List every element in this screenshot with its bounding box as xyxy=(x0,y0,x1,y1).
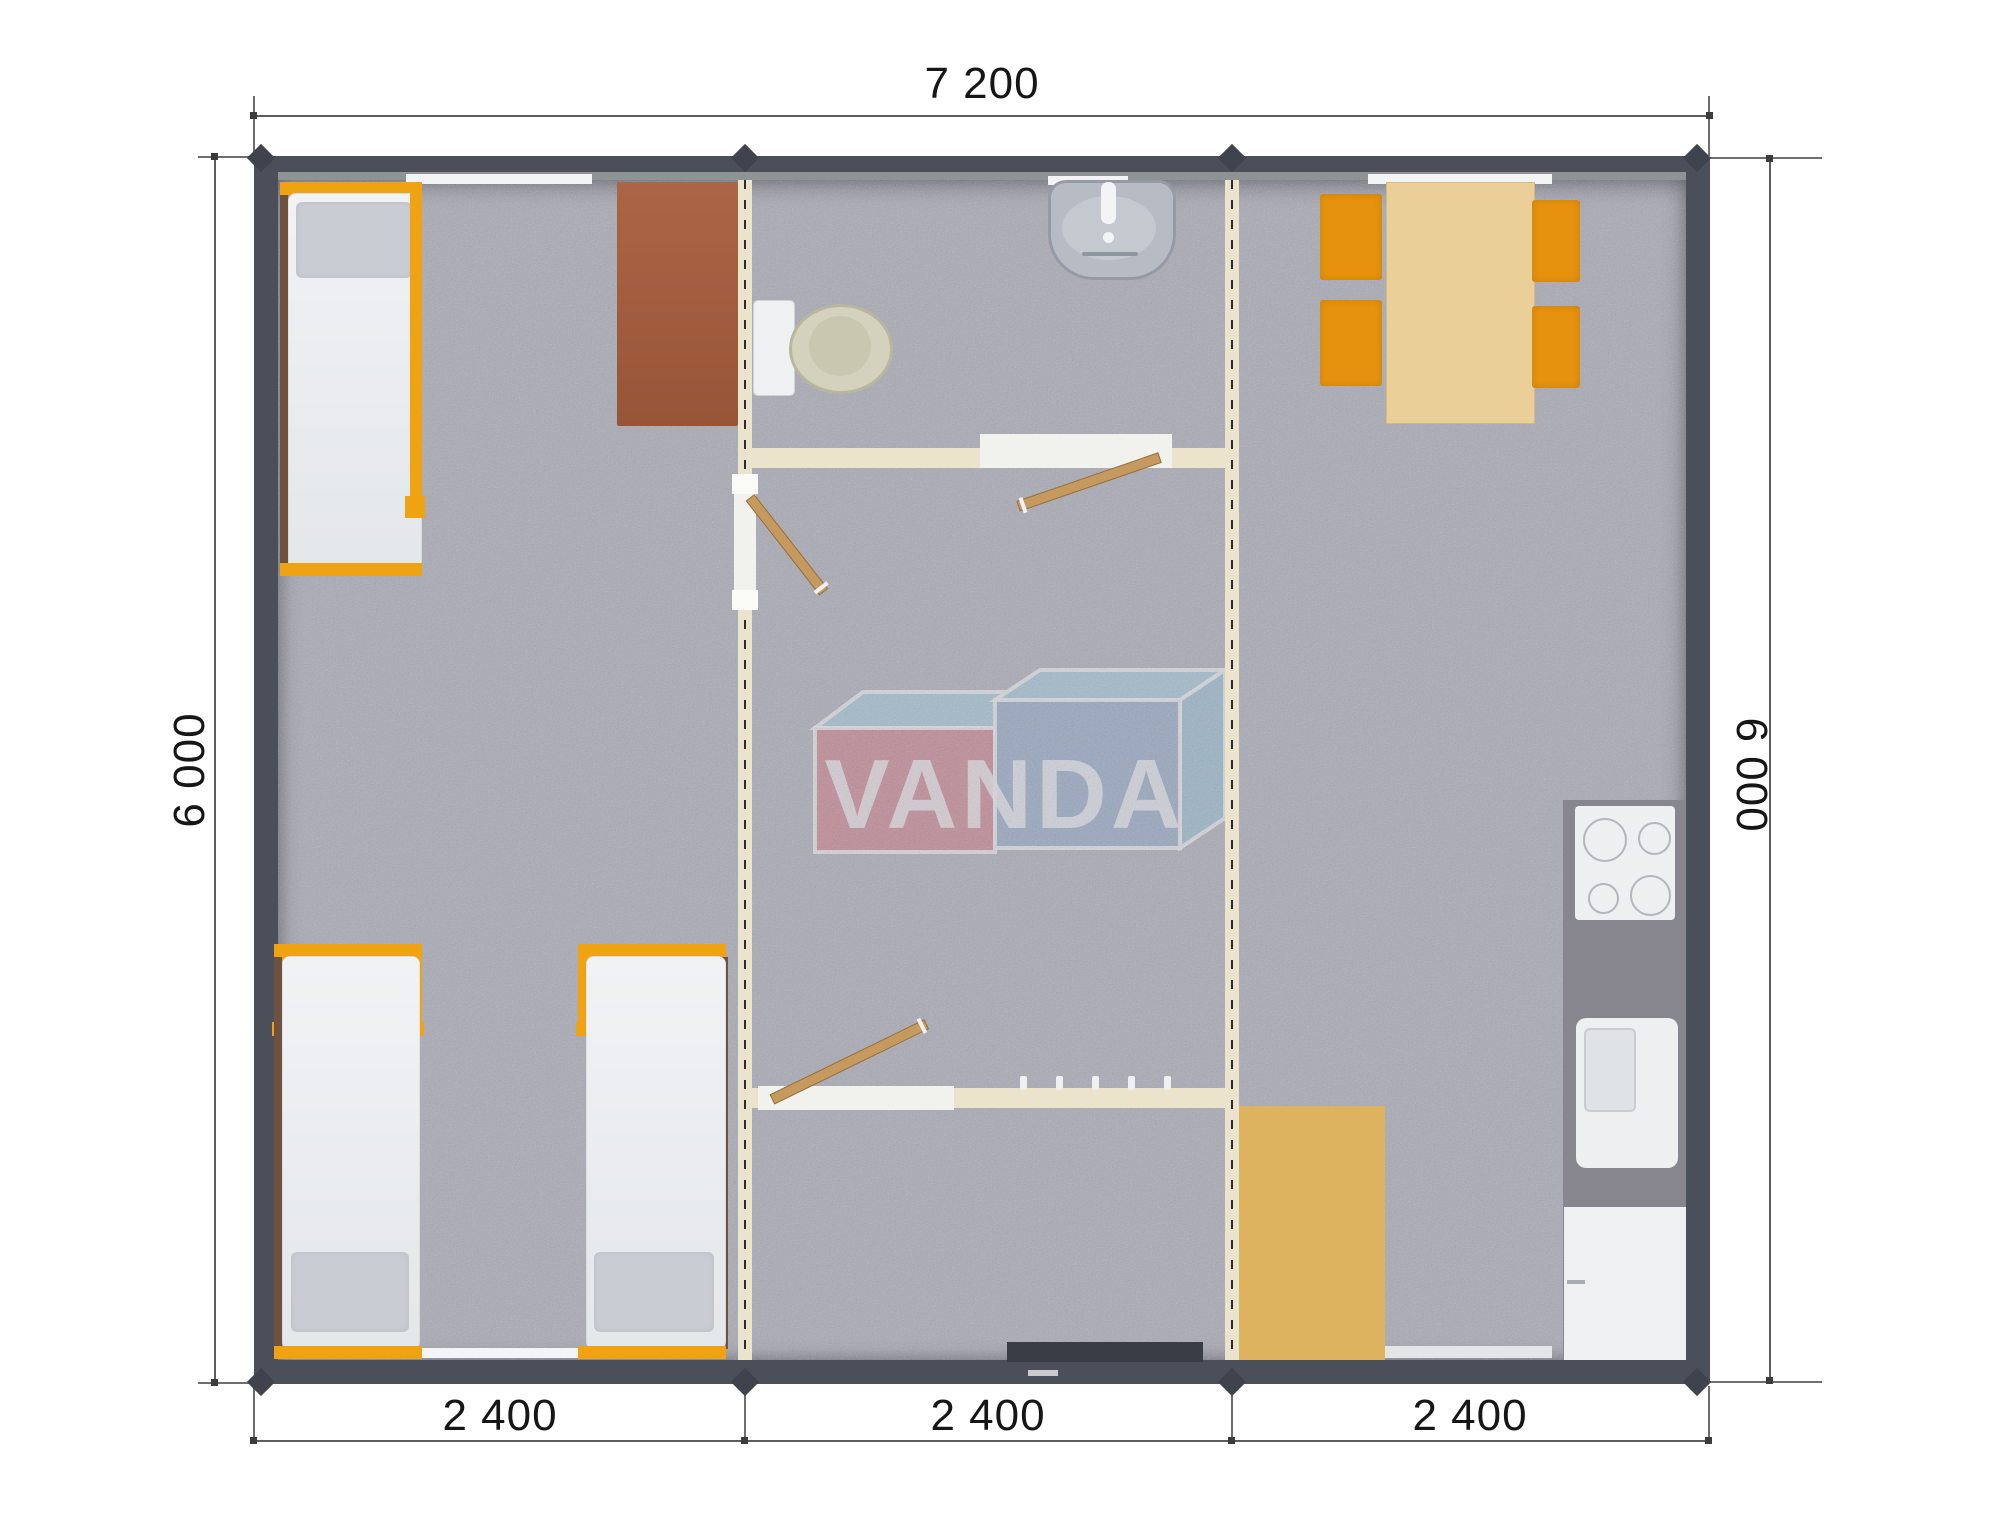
bed-pillow xyxy=(594,1252,714,1332)
vanda-watermark-logo: VANDA xyxy=(805,662,1235,862)
kitchen-sink xyxy=(1576,1018,1678,1168)
dimension-module-width: 2 400 xyxy=(1340,1392,1600,1440)
burner-icon xyxy=(1638,822,1671,855)
bed-frame-post xyxy=(405,496,425,518)
module-joint-marker xyxy=(1683,1368,1711,1396)
burner-icon xyxy=(1583,818,1627,862)
floor-mat xyxy=(1239,1106,1385,1360)
dimension-terminator xyxy=(1706,112,1713,119)
extension-line xyxy=(1708,1381,1822,1383)
dimension-terminator xyxy=(250,1437,257,1444)
cabinet-handle xyxy=(1567,1280,1585,1284)
dimension-line-top xyxy=(254,115,1710,117)
coat-hook xyxy=(1020,1076,1027,1090)
dimension-terminator xyxy=(1228,1437,1235,1444)
dimension-line-left xyxy=(214,157,216,1383)
dimension-line-bottom xyxy=(254,1440,1710,1442)
chair xyxy=(1320,300,1382,386)
coat-hook xyxy=(1092,1076,1099,1090)
extension-line xyxy=(1708,157,1822,159)
entry-door xyxy=(1007,1342,1203,1362)
module-joint-marker xyxy=(1683,144,1711,172)
door-jamb xyxy=(732,474,758,494)
dimension-terminator xyxy=(211,1379,218,1386)
window xyxy=(406,174,592,184)
bed-pillow xyxy=(291,1252,409,1332)
module-joint-marker xyxy=(731,1368,759,1396)
kitchen-sink-basin xyxy=(1584,1028,1636,1112)
faucet-handle xyxy=(1103,232,1114,243)
dimension-terminator xyxy=(250,112,257,119)
floor-plan: 7 200 2 400 2 400 2 400 6 000 6 000 xyxy=(0,0,2000,1537)
module-joint-marker xyxy=(1218,1368,1246,1396)
module-joint-marker xyxy=(1218,144,1246,172)
bed-frame-rail xyxy=(410,182,422,512)
dimension-top-width: 7 200 xyxy=(852,60,1112,108)
bed-pillow xyxy=(296,202,412,278)
faucet xyxy=(1101,182,1116,224)
chair xyxy=(1532,306,1580,388)
desk xyxy=(617,182,738,426)
module-joint-marker xyxy=(247,144,275,172)
dimension-module-width: 2 400 xyxy=(370,1392,630,1440)
partition-wall xyxy=(1225,180,1239,1360)
dimension-left-height: 6 000 xyxy=(166,640,214,900)
vanda-logo-icon: VANDA xyxy=(805,662,1235,862)
entry-door-threshold xyxy=(1368,1346,1552,1358)
dimension-terminator xyxy=(1766,1377,1773,1384)
kitchen-cabinet xyxy=(1564,1207,1686,1360)
bed-frame-rail xyxy=(274,957,282,1349)
module-joint-marker xyxy=(731,144,759,172)
burner-icon xyxy=(1588,883,1619,914)
extension-line xyxy=(253,1386,255,1444)
dimension-terminator xyxy=(741,1437,748,1444)
building-outer-walls: VANDA xyxy=(254,156,1710,1384)
coat-hook xyxy=(1164,1076,1171,1090)
chair xyxy=(1532,200,1580,282)
dimension-module-width: 2 400 xyxy=(858,1392,1118,1440)
logo-blue-box-side xyxy=(1180,670,1225,848)
coat-hook xyxy=(1056,1076,1063,1090)
partition-wall xyxy=(738,180,752,1360)
cooktop xyxy=(1575,806,1675,920)
chair xyxy=(1320,194,1382,280)
dimension-terminator xyxy=(1766,155,1773,162)
dimension-right-height: 6 000 xyxy=(1727,645,1775,905)
logo-wordmark: VANDA xyxy=(824,739,1185,849)
bed-frame-rail xyxy=(274,1346,422,1359)
door-jamb xyxy=(732,590,758,610)
extension-line xyxy=(1708,1386,1710,1444)
dimension-terminator xyxy=(211,153,218,160)
module-joint-marker xyxy=(247,1368,275,1396)
basin-overflow xyxy=(1082,252,1138,256)
dimension-line-right xyxy=(1769,158,1771,1382)
coat-hook xyxy=(1128,1076,1135,1090)
window xyxy=(406,1348,592,1358)
dining-table xyxy=(1386,182,1535,424)
extension-line xyxy=(253,96,255,156)
bed-frame-rail xyxy=(280,195,288,571)
toilet-bowl-inner xyxy=(809,316,871,376)
dimension-terminator xyxy=(1705,1437,1712,1444)
extension-line xyxy=(1708,96,1710,156)
entry-step xyxy=(1028,1370,1058,1376)
burner-icon xyxy=(1630,875,1671,916)
bed-frame-rail xyxy=(578,1346,726,1359)
bed-frame-rail xyxy=(280,563,422,576)
